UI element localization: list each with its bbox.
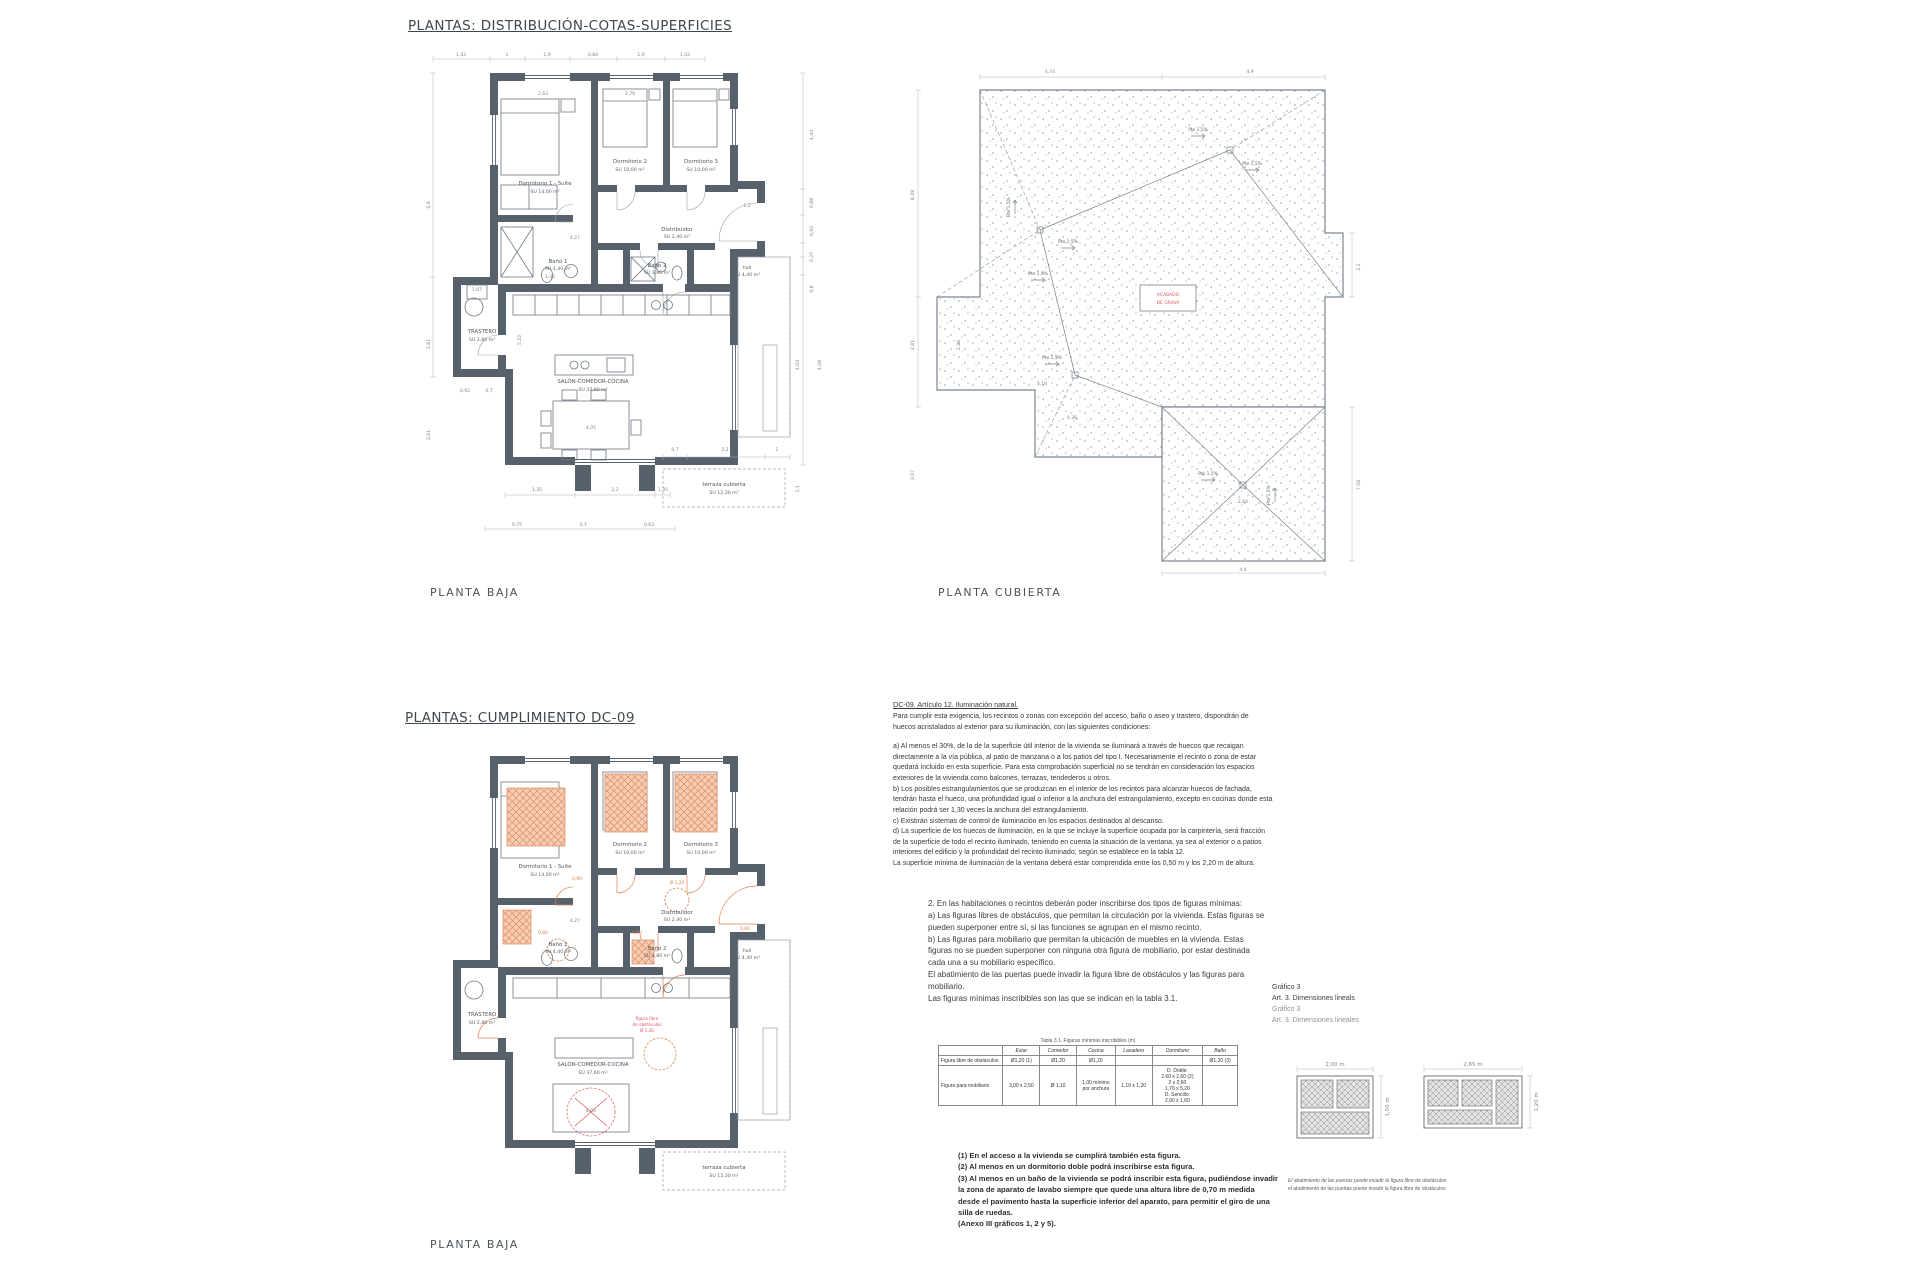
table-header: Baño <box>1203 1046 1238 1056</box>
table-cell <box>1203 1066 1238 1106</box>
table-cell: 1,10 x 1,20 <box>1115 1066 1152 1106</box>
dim-label: 0,7 <box>485 388 492 394</box>
dim-label: 3,7 <box>579 522 586 528</box>
dim-label: 4,27 <box>570 235 580 241</box>
furniture <box>465 89 790 507</box>
dim-label: 1,9 <box>543 52 550 58</box>
room-area: SU 4,40 m² <box>545 949 571 955</box>
dim-label: 4,27 <box>570 918 580 924</box>
room-area: SU 10,00 m² <box>686 167 715 173</box>
dim-label: 1,42 <box>456 52 466 58</box>
dim-label: 0,92 <box>809 226 815 236</box>
dim-label: 1,35 <box>532 487 542 493</box>
room-name: Distribuidor <box>661 910 693 916</box>
dim-label: 4,44 <box>809 130 815 140</box>
orange-dim: 0,90 <box>572 876 582 882</box>
table-cell: 1,00 mínimo por anchura <box>1076 1066 1115 1106</box>
table-row: Figura para mobiliario 3,00 x 2,50 Ø 1,1… <box>939 1066 1238 1106</box>
table-cell: Figura libre de obstáculos <box>939 1056 1003 1066</box>
dim-label: 4,04 <box>795 360 801 370</box>
slope-label: Pte 1,5% <box>1006 197 1012 217</box>
dc09-paragraph: a) Al menos el 30%, de la de la superfic… <box>893 742 1273 785</box>
orange-dim: Ø 1,20 <box>670 879 685 886</box>
room-area: SU 2,80 m² <box>469 1020 495 1026</box>
dim-label: 0,7 <box>671 447 678 453</box>
dim-label: 0,25 <box>809 252 815 262</box>
dim-label: 0,84 <box>588 52 598 58</box>
dim-label: 1,35 <box>658 487 668 493</box>
section1-title: PLANTAS: DISTRIBUCIÓN-COTAS-SUPERFICIES <box>408 18 732 34</box>
room-area: SU 12,30 m² <box>709 1173 738 1179</box>
legend-line: ACABADO <box>1157 292 1180 298</box>
room-area: SU 4,40 m² <box>734 272 760 278</box>
grafico3-line: Art. 3. Dimensiones lineales <box>1272 1016 1359 1027</box>
dim-label: 1,2 <box>743 203 750 209</box>
dim-label: 4,74 <box>1045 69 1055 75</box>
room-area: SU 3,80 m² <box>644 953 670 959</box>
slope-label: Pte 1,5% <box>1028 271 1048 277</box>
table-caption: Tabla 3.1. Figuras mínimas inscribibles … <box>938 1038 1238 1044</box>
table-cell: D. Doble: 2,60 x 2,60 (2) 2 x 2,60 1,70 … <box>1152 1066 1203 1106</box>
room-area: SU 10,00 m² <box>615 167 644 173</box>
orange-dim: 0,80 <box>632 930 642 936</box>
drawing-sheet: PLANTAS: DISTRIBUCIÓN-COTAS-SUPERFICIES … <box>0 0 1920 1280</box>
dim-label: 7,58 <box>1356 480 1362 490</box>
grafico3-line: Gráfico 3 <box>1272 1005 1359 1016</box>
windows <box>493 76 736 463</box>
room-name: Baño 1 <box>549 942 568 948</box>
figura-diagram-2: 2,65 m 1,20 m <box>1418 1060 1543 1165</box>
planta-dc09-label: PLANTA BAJA <box>430 1238 519 1251</box>
dim-label: 4,36 <box>1067 415 1077 421</box>
table-header: Comedor <box>1040 1046 1077 1056</box>
planta-baja-drawing: 1,42 1 1,9 0,84 1,9 1,02 2,63 2,79 6,9 2… <box>425 45 845 575</box>
table-cell <box>1115 1056 1152 1066</box>
dim-label: 1 <box>776 447 779 453</box>
figuras-paragraph: El abatimiento de las puertas puede inva… <box>928 969 1265 992</box>
table-header: Estar <box>1003 1046 1040 1056</box>
room-name: Baño 2 <box>648 946 667 952</box>
diagram-height-label: 1,50 m <box>1385 1097 1391 1116</box>
slope-label: Pte 1,5% <box>1266 485 1272 505</box>
dc09-paragraph: b) Los posibles estrangulamientos que se… <box>893 785 1273 817</box>
table-cell: Ø1,20 (1) <box>1003 1056 1040 1066</box>
planta-dc09-drawing: 0,80 0,80 0,90 0,60 Ø 1,20 figura libre … <box>425 728 845 1238</box>
room-name: Distribuidor <box>661 227 693 233</box>
dim-label: 2,63 <box>538 91 548 97</box>
diagram-height-label: 1,20 m <box>1534 1092 1540 1111</box>
dim-label: 2,79 <box>625 91 635 97</box>
roof-legend: ACABADO DE GRAVA <box>1140 285 1196 311</box>
table-header <box>939 1046 1003 1056</box>
dim-label: 1 <box>506 52 509 58</box>
dim-label: 2,2 <box>721 447 728 453</box>
dc09-text-block: DC-09. Artículo 12. Iluminación natural.… <box>893 700 1273 870</box>
dc09-title: DC-09. Artículo 12. Iluminación natural. <box>893 700 1273 711</box>
dim-label: 0,92 <box>460 388 470 394</box>
room-area: SU 10,00 m² <box>615 850 644 856</box>
room-name: terraza cubierta <box>702 1165 745 1171</box>
table-row: Figura libre de obstáculos Ø1,20 (1) Ø1,… <box>939 1056 1238 1066</box>
exterior-walls <box>453 73 765 491</box>
planta-cubierta-drawing: Pte 1,5% Pte 1,5% Pte 1,5% Pte 1,5% Pte … <box>900 45 1365 580</box>
dc09-paragraph: c) Existirán sistemas de control de ilum… <box>893 817 1273 828</box>
dc09-annotations: 0,80 0,80 0,90 0,60 Ø 1,20 figura libre … <box>538 876 750 1114</box>
note-line: (Anexo III gráficos 1, 2 y 5). <box>958 1218 1278 1229</box>
dim-label: 5,22 <box>517 335 523 345</box>
red-note-line: Ø 1,20 <box>640 1028 654 1033</box>
dim-label: 5,18 <box>1037 381 1047 387</box>
room-name: Dormitorio 1 - Suite <box>518 864 572 870</box>
diagram-caption: El abatimiento de las puertas puede inva… <box>1288 1178 1578 1193</box>
room-area: SU 3,80 m² <box>644 270 670 276</box>
table-cell: 3,00 x 2,50 <box>1003 1066 1040 1106</box>
grafico3-text: Gráfico 3 Art. 3. Dimensiones lineals Gr… <box>1272 983 1359 1026</box>
room-name: hall <box>743 265 751 271</box>
dim-label: 0,88 <box>809 198 815 208</box>
table-header: Dormitorio <box>1152 1046 1203 1056</box>
legend-line: DE GRAVA <box>1157 300 1181 306</box>
grafico3-line: Gráfico 3 <box>1272 983 1359 994</box>
figuras-paragraph: b) Las figuras para mobiliario que permi… <box>928 934 1265 968</box>
tabla-3-1: Tabla 3.1. Figuras mínimas inscribibles … <box>938 1038 1238 1106</box>
room-name: terraza cubierta <box>702 482 745 488</box>
diagram-caption-line: El abatimiento de las puertas puede inva… <box>1288 1178 1578 1186</box>
dc09-paragraph: Para cumplir esta exigencia, los recinto… <box>893 712 1273 733</box>
figuras-text-block: 2. En las habitaciones o recintos deberá… <box>928 898 1265 1005</box>
dim-label: 4,4 <box>1239 567 1246 573</box>
dim-label: 0,75 <box>512 522 522 528</box>
orange-dim: 0,80 <box>538 930 548 936</box>
room-area: SU 37,60 m² <box>578 1070 607 1076</box>
dc09-paragraph: La superficie mínima de iluminación de l… <box>893 859 1273 870</box>
dim-label: 4,9 <box>1246 69 1253 75</box>
figuras-paragraph: Las figuras mínimas inscribibles son las… <box>928 993 1265 1004</box>
room-name: Dormitorio 2 <box>613 842 647 848</box>
dim-label: 4,05 <box>586 425 596 431</box>
note-line: (1) En el acceso a la vivienda se cumpli… <box>958 1150 1278 1161</box>
room-name: TRASTERO <box>467 1012 497 1018</box>
orange-dim: 0,60 <box>740 926 750 932</box>
room-area: SU 4,40 m² <box>734 955 760 961</box>
dim-label: 1,02 <box>680 52 690 58</box>
diagram-width-label: 2,00 m <box>1325 1062 1344 1068</box>
room-name: SALÓN-COMEDOR-COCINA <box>557 378 629 385</box>
dc09-paragraph: d) La superficie de los huecos de ilumin… <box>893 827 1273 859</box>
slope-label: Pte 1,5% <box>1198 471 1218 477</box>
table-header: Cocina <box>1076 1046 1115 1056</box>
room-name: Dormitorio 2 <box>613 159 647 165</box>
dim-label: 2,2 <box>1356 263 1362 270</box>
dim-label: 2,64 <box>1238 499 1248 505</box>
note-line: (3) Al menos en un baño de la vivienda s… <box>958 1173 1278 1219</box>
planta-baja-label: PLANTA BAJA <box>430 586 519 599</box>
room-name: Dormitorio 3 <box>684 842 718 848</box>
room-area: SU 2,80 m² <box>469 337 495 343</box>
section2-title: PLANTAS: CUMPLIMIENTO DC-09 <box>405 710 635 726</box>
dim-label: 0,63 <box>644 522 654 528</box>
dim-label: 3,07 <box>910 470 916 480</box>
room-name: Dormitorio 1 - Suite <box>518 181 572 187</box>
dim-label: 2,1 <box>795 485 801 492</box>
diagram-caption-line: el abatimiento de las puertas puede inva… <box>1288 1186 1578 1194</box>
figura-diagram-1: 2,00 m 1,50 m <box>1285 1060 1395 1165</box>
room-area: SU 10,00 m² <box>686 850 715 856</box>
red-note-line: de obstáculos <box>632 1022 661 1027</box>
table-cell: Figura para mobiliario <box>939 1066 1003 1106</box>
diagram-width-label: 2,65 m <box>1463 1062 1482 1068</box>
note-line: (2) Al menos en un dormitorio doble podr… <box>958 1161 1278 1172</box>
room-area: SU 2,40 m² <box>664 917 690 923</box>
red-note-line: figura libre <box>636 1016 659 1021</box>
room-name: Dormitorio 3 <box>684 159 718 165</box>
grafico3-diagrams: 2,00 m 1,50 m 2,65 m 1,20 m <box>1285 1060 1543 1165</box>
slope-label: Pte 1,5% <box>1058 239 1078 245</box>
dim-label: 2,61 <box>426 430 432 440</box>
slope-label: Pte 1,5% <box>1042 355 1062 361</box>
dim-label: 2,2 <box>611 487 618 493</box>
slope-label: Pte 1,5% <box>1188 127 1208 133</box>
dim-label: 1,67 <box>472 287 482 293</box>
dc09-figures <box>503 774 717 1136</box>
room-area: SU 12,30 m² <box>709 490 738 496</box>
dim-label: 6,9 <box>426 201 432 208</box>
figuras-paragraph: 2. En las habitaciones o recintos deberá… <box>928 898 1265 909</box>
dimension-lines <box>430 56 806 532</box>
figuras-paragraph: a) Las figuras libres de obstáculos, que… <box>928 910 1265 933</box>
planta-cubierta-label: PLANTA CUBIERTA <box>938 586 1061 599</box>
table-header: Lavadero <box>1115 1046 1152 1056</box>
room-name: SALÓN-COMEDOR-COCINA <box>557 1061 629 1068</box>
table-cell: Ø 1,10 <box>1040 1066 1077 1106</box>
notes-block: (1) En el acceso a la vivienda se cumpli… <box>958 1150 1278 1230</box>
room-area: SU 37,60 m² <box>578 387 607 393</box>
dim-label: 1,42 <box>545 274 555 280</box>
room-name: Baño 2 <box>648 263 667 269</box>
slope-label: Pte 1,5% <box>1242 161 1262 167</box>
room-area: SU 2,40 m² <box>664 234 690 240</box>
room-name: Baño 1 <box>549 259 568 265</box>
dim-label: 4,05 <box>586 1108 596 1114</box>
room-area: SU 14,00 m² <box>530 872 559 878</box>
room-area: SU 4,40 m² <box>545 266 571 272</box>
dim-label: 1,9 <box>637 52 644 58</box>
dim-label: 4,08 <box>817 360 823 370</box>
room-area: SU 14,00 m² <box>530 189 559 195</box>
dim-label: 2,81 <box>426 339 432 349</box>
room-name: hall <box>743 948 751 954</box>
dim-label: 2,26 <box>956 340 962 350</box>
table-cell <box>1152 1056 1203 1066</box>
table-cell: Ø1,20 <box>1076 1056 1115 1066</box>
table-cell: Ø1,20 (3) <box>1203 1056 1238 1066</box>
room-name: TRASTERO <box>467 329 497 335</box>
table-cell: Ø1,20 <box>1040 1056 1077 1066</box>
roof-outline <box>937 90 1343 561</box>
grafico3-line: Art. 3. Dimensiones lineals <box>1272 994 1359 1005</box>
dim-label: 8,28 <box>910 190 916 200</box>
dim-label: 2,81 <box>910 340 916 350</box>
dim-label: 0,8 <box>809 285 815 292</box>
